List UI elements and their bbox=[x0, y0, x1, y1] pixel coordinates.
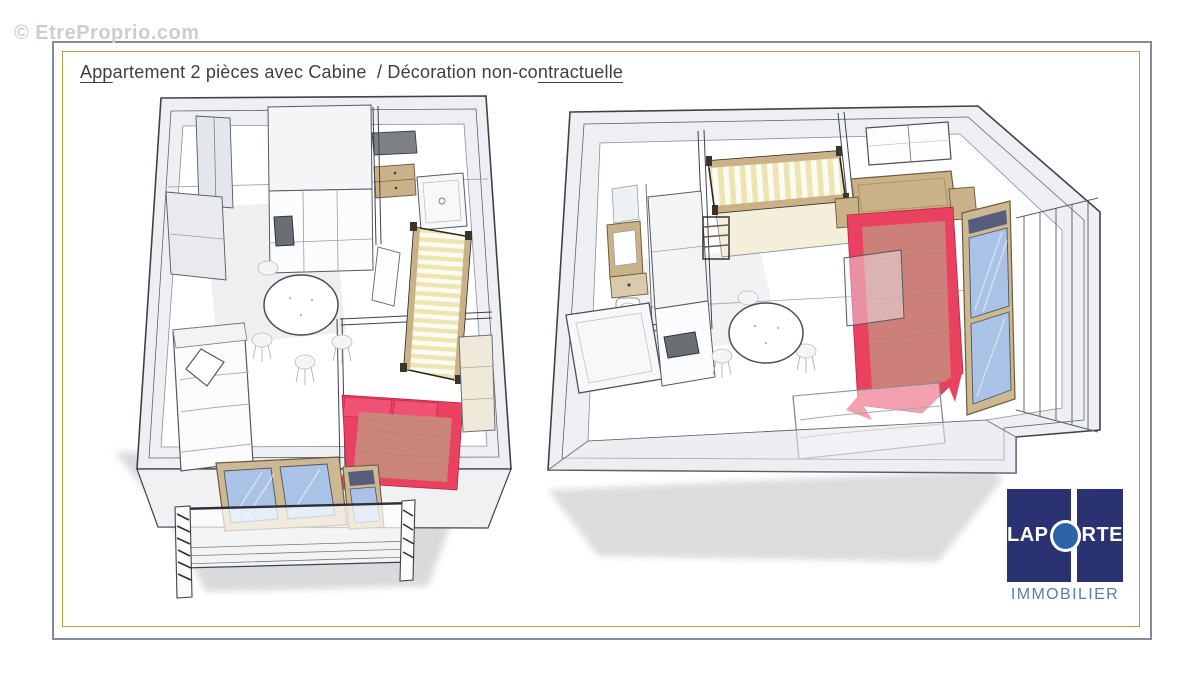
title-underlined-end: ntractuelle bbox=[538, 62, 623, 82]
laporte-logo: LAP RTE IMMOBILIER bbox=[1007, 489, 1123, 604]
bunk-bed bbox=[703, 146, 851, 259]
chair bbox=[738, 291, 758, 305]
logo-circle-icon bbox=[1050, 520, 1081, 552]
cooktop bbox=[274, 216, 294, 246]
floorplan-left-image bbox=[105, 88, 545, 600]
sofa bbox=[173, 323, 253, 471]
logo-word-left: LAP bbox=[1007, 524, 1049, 547]
bench bbox=[459, 335, 495, 432]
cooktop bbox=[664, 332, 699, 358]
round-table bbox=[264, 275, 338, 335]
logo-square: LAP RTE bbox=[1007, 489, 1123, 582]
round-table bbox=[729, 303, 803, 363]
mirror bbox=[612, 185, 639, 223]
logo-word-right: RTE bbox=[1082, 524, 1124, 547]
shower bbox=[566, 303, 662, 393]
logo-subtitle: IMMOBILIER bbox=[1007, 586, 1123, 604]
slide: © EtreProprio.com Appartement 2 pièces a… bbox=[0, 0, 1200, 675]
title-underlined-start: App bbox=[80, 62, 113, 82]
page-title: Appartement 2 pièces avec Cabine / Décor… bbox=[80, 62, 623, 83]
window bbox=[962, 201, 1015, 415]
chair bbox=[258, 261, 278, 275]
kitchen bbox=[268, 105, 373, 273]
watermark: © EtreProprio.com bbox=[14, 22, 200, 45]
title-middle: artement 2 pièces avec Cabine / Décorati… bbox=[113, 62, 538, 82]
drop-shadow bbox=[548, 470, 1002, 562]
wall-shelf bbox=[866, 122, 951, 165]
glass-door bbox=[844, 250, 904, 326]
